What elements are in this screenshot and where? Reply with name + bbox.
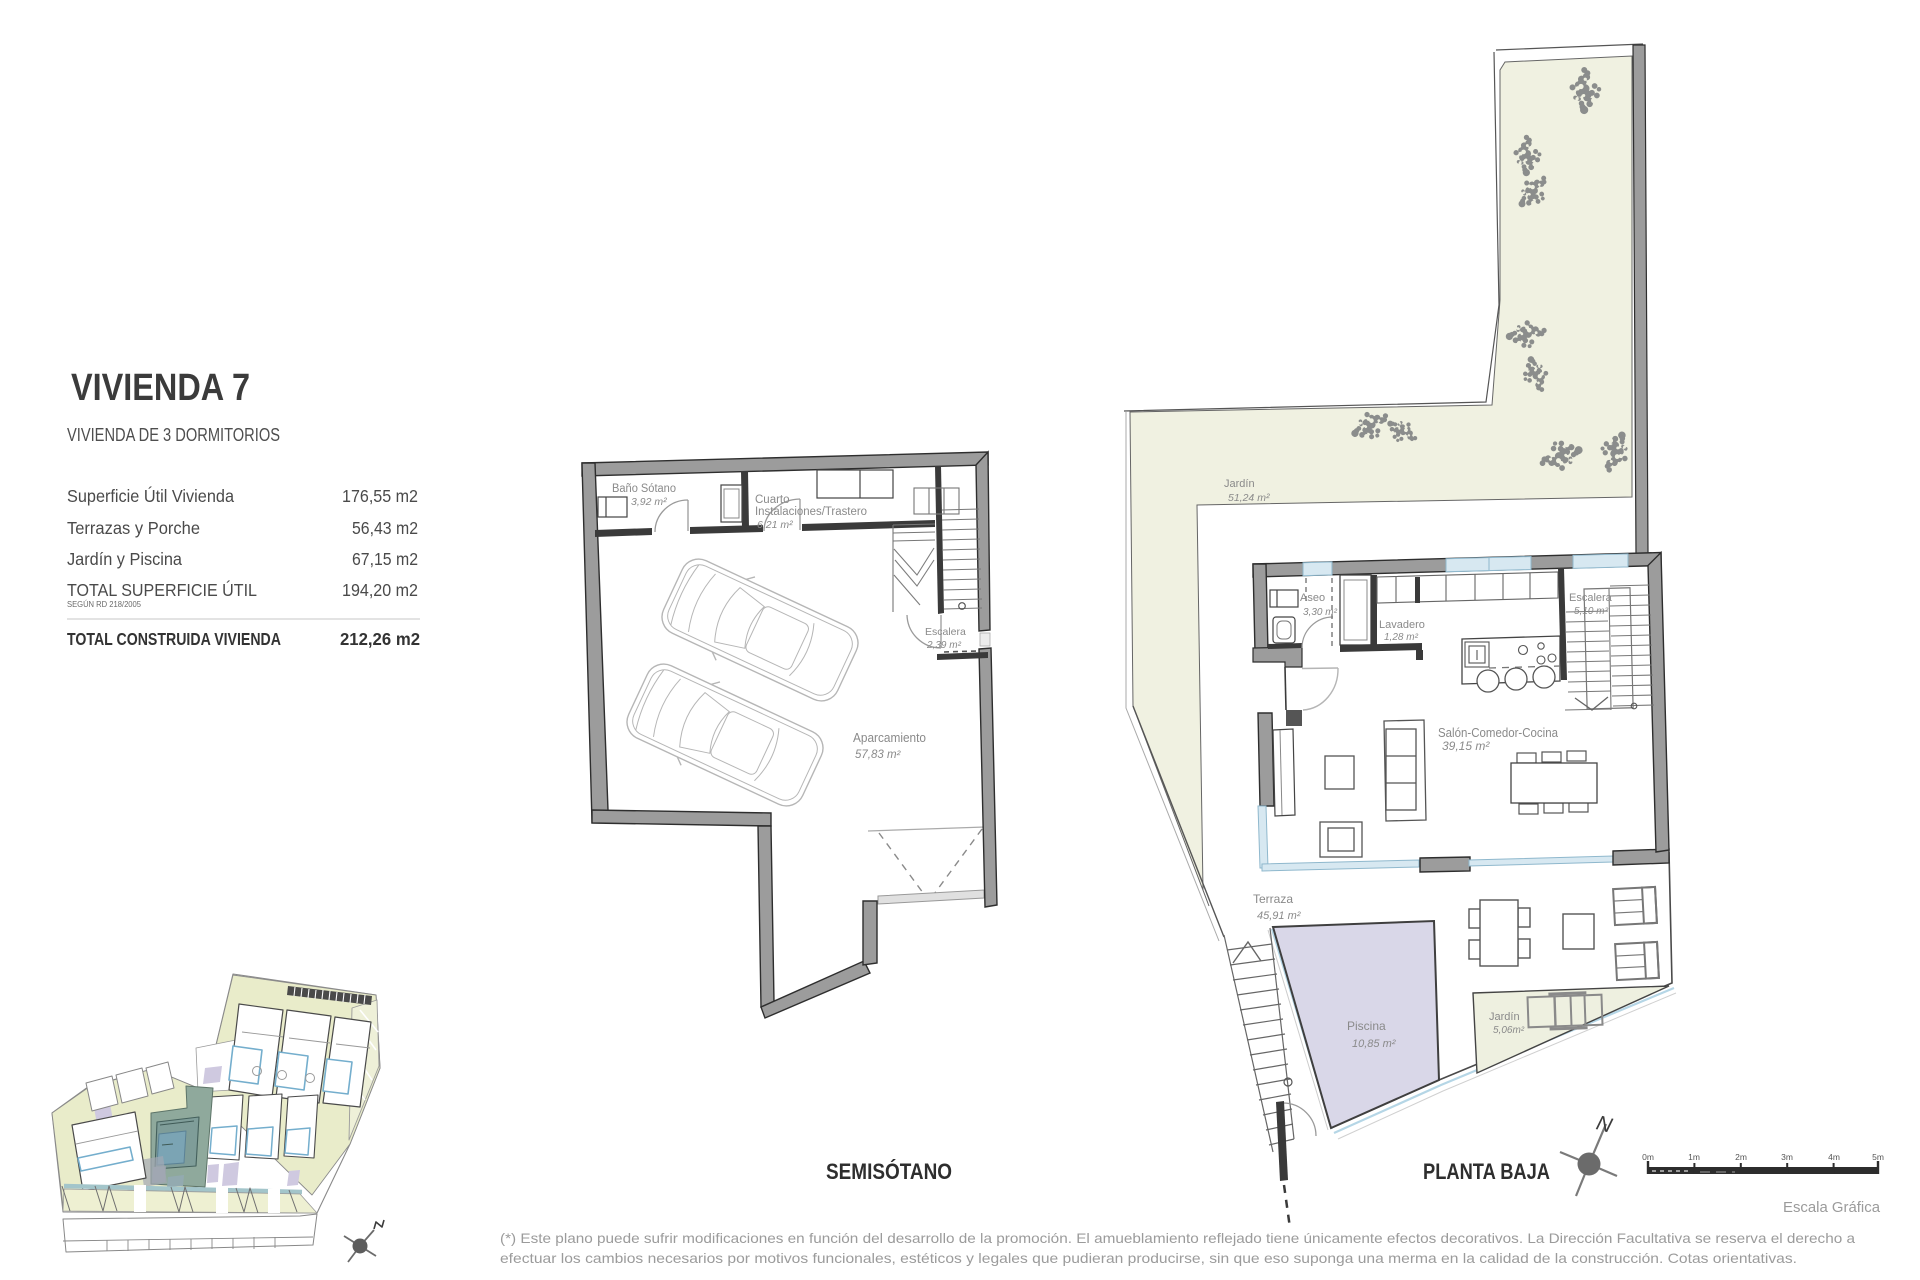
- svg-text:Jardín: Jardín: [1489, 1011, 1520, 1023]
- svg-text:6,21 m²: 6,21 m²: [757, 519, 793, 531]
- svg-text:Terraza: Terraza: [1253, 892, 1293, 906]
- svg-text:3,30 m²: 3,30 m²: [1303, 607, 1338, 618]
- svg-text:VIVIENDA 7: VIVIENDA 7: [71, 367, 250, 409]
- svg-text:5,06m²: 5,06m²: [1493, 1025, 1525, 1036]
- svg-text:212,26 m2: 212,26 m2: [340, 629, 420, 649]
- svg-text:Jardín: Jardín: [1224, 478, 1255, 490]
- svg-text:VIVIENDA DE 3 DORMITORIOS: VIVIENDA DE 3 DORMITORIOS: [67, 425, 280, 445]
- svg-text:Instalaciones/Trastero: Instalaciones/Trastero: [755, 506, 867, 518]
- svg-text:Jardín y Piscina: Jardín y Piscina: [67, 549, 182, 569]
- svg-text:3,92 m²: 3,92 m²: [631, 496, 667, 508]
- svg-text:Aparcamiento: Aparcamiento: [853, 731, 926, 745]
- svg-text:45,91 m²: 45,91 m²: [1257, 910, 1301, 922]
- svg-text:TOTAL CONSTRUIDA VIVIENDA: TOTAL CONSTRUIDA VIVIENDA: [67, 629, 281, 649]
- svg-text:56,43 m2: 56,43 m2: [352, 518, 418, 538]
- svg-text:57,83 m²: 57,83 m²: [855, 749, 902, 761]
- svg-text:N: N: [1594, 1112, 1615, 1138]
- svg-text:Aseo: Aseo: [1300, 592, 1325, 604]
- svg-text:3m: 3m: [1781, 1152, 1793, 1162]
- svg-text:Superficie Útil Vivienda: Superficie Útil Vivienda: [67, 485, 234, 506]
- svg-text:5,10 m²: 5,10 m²: [1574, 606, 1609, 617]
- svg-text:Escalera: Escalera: [1569, 592, 1613, 604]
- svg-text:(*) Este plano puede sufrir mo: (*) Este plano puede sufrir modificacion…: [500, 1230, 1855, 1246]
- svg-text:efectuar los cambios necesario: efectuar los cambios necesarios por moti…: [500, 1250, 1797, 1266]
- svg-text:0m: 0m: [1642, 1152, 1654, 1162]
- svg-text:Escalera: Escalera: [925, 626, 966, 638]
- svg-text:Baño Sótano: Baño Sótano: [612, 483, 676, 495]
- svg-text:Piscina: Piscina: [1347, 1019, 1386, 1033]
- svg-text:2,39 m²: 2,39 m²: [926, 640, 962, 651]
- svg-text:TOTAL SUPERFICIE ÚTIL: TOTAL SUPERFICIE ÚTIL: [67, 579, 257, 600]
- svg-text:39,15 m²: 39,15 m²: [1442, 739, 1490, 753]
- svg-text:Terrazas y Porche: Terrazas y Porche: [67, 518, 200, 538]
- svg-text:194,20 m2: 194,20 m2: [342, 580, 418, 600]
- svg-text:Lavadero: Lavadero: [1379, 619, 1425, 631]
- svg-text:Cuarto: Cuarto: [755, 494, 790, 506]
- svg-text:10,85 m²: 10,85 m²: [1352, 1038, 1396, 1050]
- svg-text:2m: 2m: [1735, 1152, 1747, 1162]
- svg-text:SEGÚN RD 218/2005: SEGÚN RD 218/2005: [67, 599, 141, 609]
- svg-text:Salón-Comedor-Cocina: Salón-Comedor-Cocina: [1438, 725, 1559, 740]
- svg-text:1,28 m²: 1,28 m²: [1384, 632, 1419, 643]
- svg-text:Escala Gráfica: Escala Gráfica: [1783, 1200, 1881, 1216]
- svg-text:5m: 5m: [1872, 1152, 1884, 1162]
- svg-text:PLANTA BAJA: PLANTA BAJA: [1423, 1159, 1550, 1184]
- svg-text:67,15 m2: 67,15 m2: [352, 549, 418, 569]
- svg-text:1m: 1m: [1688, 1152, 1700, 1162]
- svg-text:4m: 4m: [1828, 1152, 1840, 1162]
- svg-text:SEMISÓTANO: SEMISÓTANO: [826, 1159, 952, 1184]
- svg-text:51,24 m²: 51,24 m²: [1228, 492, 1270, 504]
- svg-text:176,55 m2: 176,55 m2: [342, 486, 418, 506]
